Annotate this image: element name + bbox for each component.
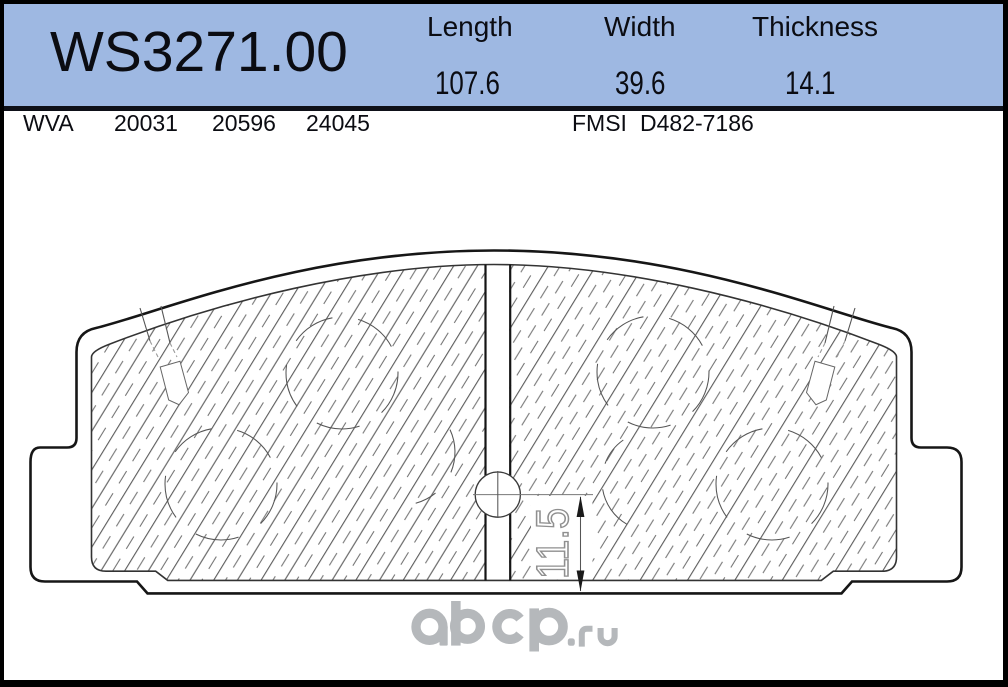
svg-text:11.5: 11.5	[527, 508, 578, 579]
